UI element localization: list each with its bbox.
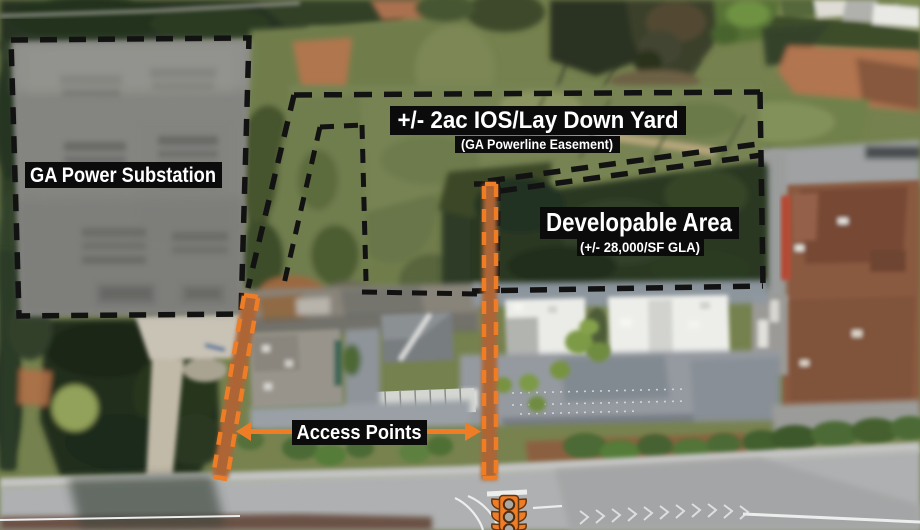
svg-text:(+/- 28,000/SF GLA): (+/- 28,000/SF GLA) [580, 239, 700, 255]
svg-text:+/- 2ac IOS/Lay Down Yard: +/- 2ac IOS/Lay Down Yard [398, 107, 679, 134]
svg-text:Access Points: Access Points [297, 422, 422, 444]
svg-text:Developable Area: Developable Area [546, 207, 732, 237]
svg-text:(GA Powerline Easement): (GA Powerline Easement) [461, 137, 613, 152]
svg-text:GA Power Substation: GA Power Substation [30, 164, 216, 187]
